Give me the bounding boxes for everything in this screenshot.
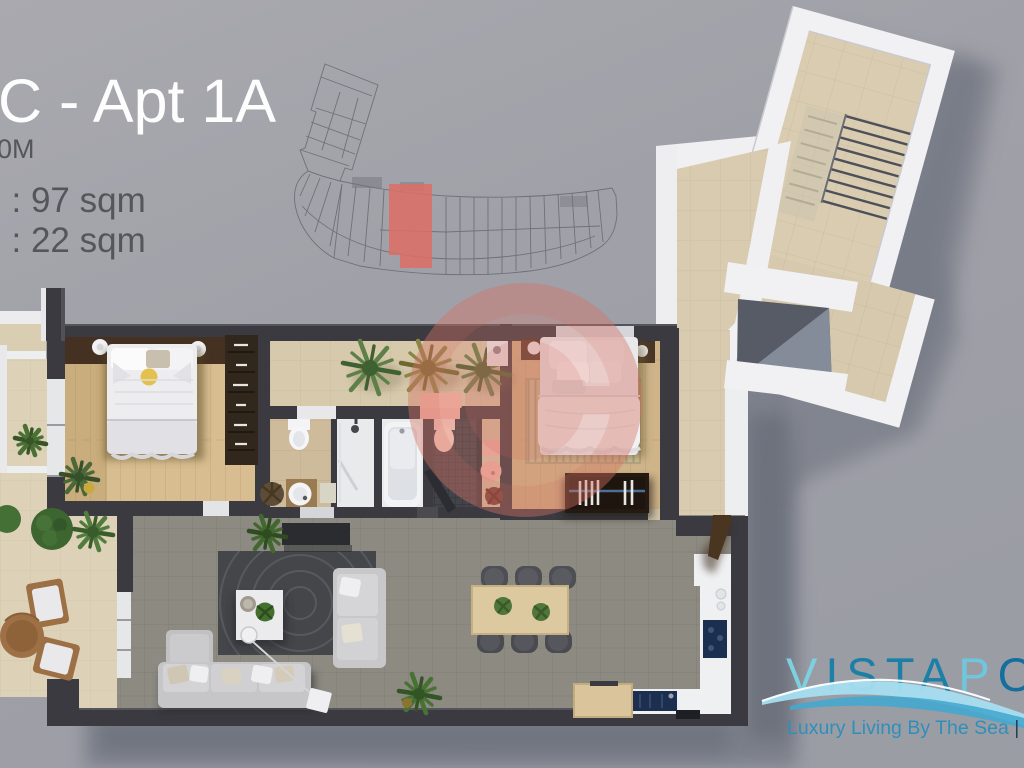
svg-text:Luxury Living By The Sea | M: Luxury Living By The Sea | M xyxy=(787,717,1024,739)
svg-text:C - Apt 1A: C - Apt 1A xyxy=(0,67,276,135)
svg-text:l : 22 sqm: l : 22 sqm xyxy=(0,221,146,260)
svg-text:0M: 0M xyxy=(0,134,35,164)
svg-text:l : 97 sqm: l : 97 sqm xyxy=(0,181,146,220)
